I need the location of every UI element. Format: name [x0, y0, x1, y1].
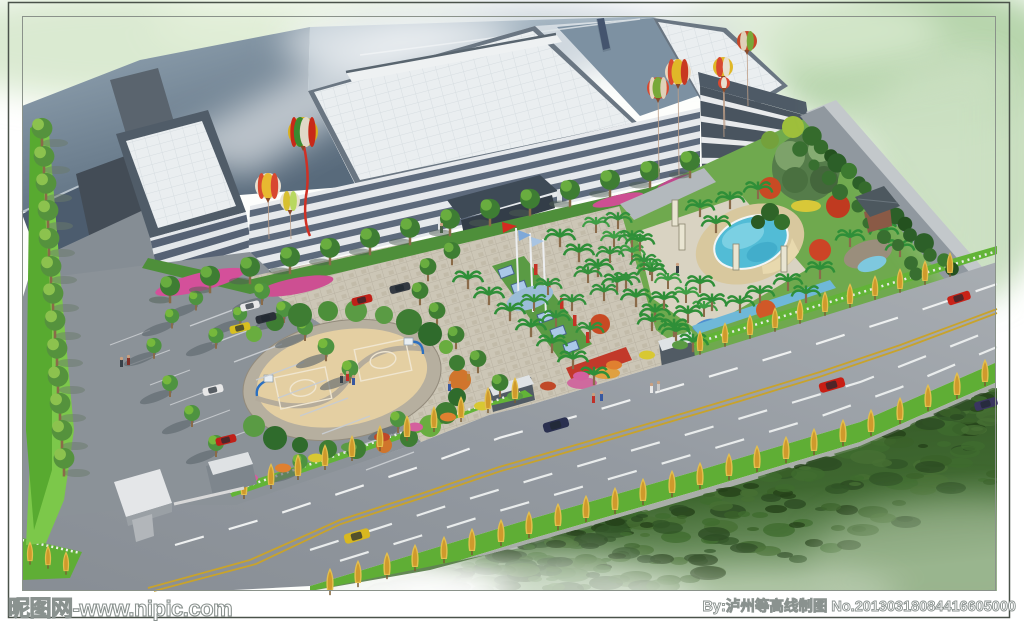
svg-text:昵图网-www.nipic.com: 昵图网-www.nipic.com — [8, 596, 232, 621]
svg-text:By:泸州等高线制图 No.201303180844166: By:泸州等高线制图 No.20130318084416605000 — [702, 597, 1016, 615]
